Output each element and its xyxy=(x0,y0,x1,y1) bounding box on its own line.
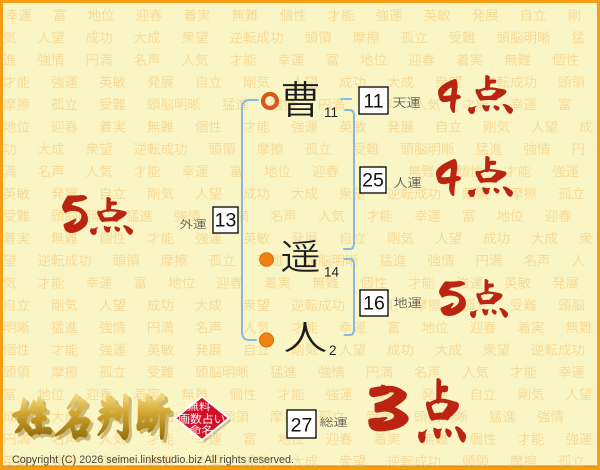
svg-text:14: 14 xyxy=(324,265,340,280)
svg-text:11: 11 xyxy=(363,91,383,113)
svg-text:25: 25 xyxy=(362,170,384,192)
svg-text:Copyright (C) 2026 seimei.link: Copyright (C) 2026 seimei.linkstudio.biz… xyxy=(12,454,294,466)
svg-text:11: 11 xyxy=(324,105,338,120)
svg-text:16: 16 xyxy=(363,293,385,315)
svg-text:2: 2 xyxy=(329,343,337,358)
svg-text:27: 27 xyxy=(291,415,313,437)
svg-text:13: 13 xyxy=(215,210,237,232)
